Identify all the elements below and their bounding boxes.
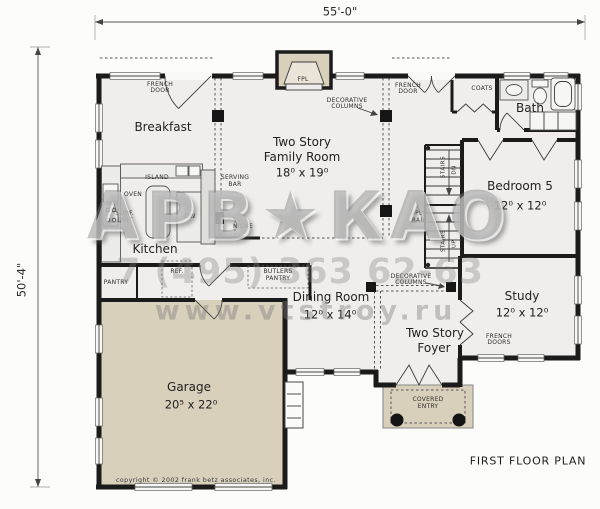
label-stairs-dn: STAIRS — [441, 156, 447, 178]
label-french-doors-study-2: DOORS — [487, 340, 510, 346]
label-garage-size: 20⁵ x 22⁰ — [165, 399, 218, 411]
garage-stoop — [285, 382, 303, 428]
dimension-left: 50'-4" — [16, 263, 28, 298]
label-kitchen: Kitchen — [132, 243, 177, 255]
label-pantry: PANTRY — [104, 280, 128, 286]
label-surface-unit-2: UNIT — [117, 218, 132, 224]
floor-areas — [99, 76, 578, 487]
dimension-top: 55'-0" — [323, 6, 358, 18]
label-stairs-up: STAIRS — [441, 230, 447, 252]
label-oven: OVEN — [124, 192, 142, 198]
label-study-size: 12⁰ x 12⁰ — [496, 307, 549, 319]
label-family-room-size: 18⁰ x 19⁰ — [276, 167, 329, 179]
label-niche: NICHE — [233, 224, 253, 230]
label-family-room-2: Family Room — [264, 151, 341, 163]
label-dn: DN — [452, 165, 458, 174]
label-french-door-hall-2: DOOR — [398, 89, 417, 95]
label-serving-bar-2: BAR — [228, 182, 241, 188]
label-decorative-columns-1b: COLUMNS — [331, 104, 363, 110]
floor-plan-page: 55'-0" 50'-4" Breakfast Two Story Family… — [0, 0, 600, 509]
fireplace — [277, 52, 331, 90]
label-french-door-breakfast-2: DOOR — [150, 88, 169, 94]
label-family-room-1: Two Story — [273, 136, 331, 148]
label-open-rail-1: OPEN — [410, 211, 427, 217]
label-foyer-1: Two Story — [406, 327, 464, 339]
label-covered-entry-2: ENTRY — [418, 404, 439, 410]
label-island: ISLAND — [145, 175, 169, 181]
label-bath: Bath — [516, 102, 544, 114]
label-dining-room: Dining Room — [293, 291, 370, 303]
label-decorative-columns-2b: COLUMNS — [395, 280, 427, 286]
label-butlers-pantry-2: PANTRY — [266, 276, 290, 282]
label-dw: DW — [184, 214, 195, 220]
label-bedroom5: Bedroom 5 — [487, 180, 553, 192]
label-foyer-2: Foyer — [417, 342, 450, 354]
label-study: Study — [505, 290, 540, 302]
label-coats: COATS — [471, 86, 492, 92]
plan-title: FIRST FLOOR PLAN — [470, 456, 587, 467]
label-ref: REF. — [170, 269, 183, 275]
copyright-notice: copyright © 2002 frank betz associates, … — [116, 478, 276, 484]
label-dining-room-size: 12⁰ x 14⁰ — [304, 309, 357, 321]
label-bedroom5-size: 12⁰ x 12⁰ — [494, 200, 547, 212]
label-up: UP — [452, 240, 458, 248]
label-fireplace: FPL — [297, 77, 308, 83]
label-garage: Garage — [167, 381, 211, 393]
label-breakfast: Breakfast — [134, 121, 191, 133]
label-open-rail-2: RAIL — [412, 218, 426, 224]
